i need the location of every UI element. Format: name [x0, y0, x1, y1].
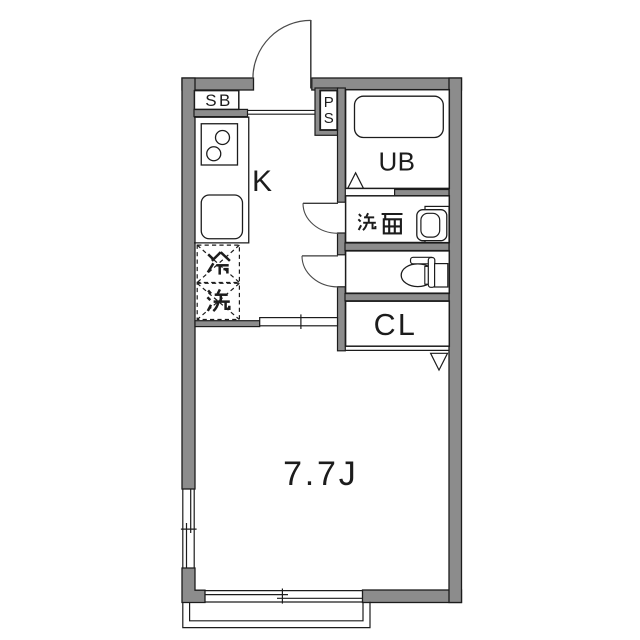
svg-text:7.7J: 7.7J [283, 455, 358, 493]
svg-text:UB: UB [378, 146, 415, 176]
svg-text:CL: CL [374, 308, 417, 342]
svg-text:S: S [324, 110, 334, 127]
svg-text:K: K [252, 165, 272, 198]
svg-text:P: P [324, 94, 334, 111]
svg-text:SB: SB [205, 91, 232, 110]
